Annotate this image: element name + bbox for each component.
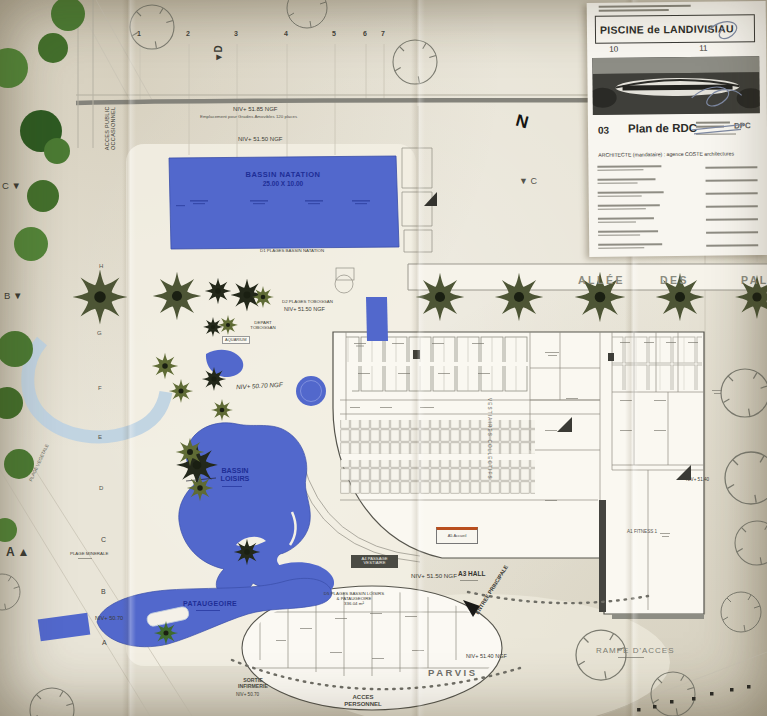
d2-plages: D2 PLAGES TOBOGGAN (282, 299, 333, 304)
grid-letter: A (102, 639, 107, 647)
d1-plages: D1 PLAGES BASSIN NATATION (260, 248, 324, 253)
allee-word-1: ALLÉE (578, 274, 625, 286)
a1-fitness-label: A1 FITNESS 1 (627, 529, 657, 534)
acces-public-label: ACCES PUBLICOCCASIONNEL (104, 96, 117, 160)
section-d-marker: ▼D (213, 45, 225, 62)
allee-word-2: DES (660, 274, 689, 286)
acces-personnel-label: ACCESPERSONNEL (332, 694, 394, 708)
drawing-title: Plan de RDC (628, 122, 697, 136)
bassin-natation-label: BASSIN NATATION 25.00 X 10.00 (233, 171, 333, 187)
plan-photo: ACCES PUBLICOCCASIONNEL ▼D N ▼ C C ▼ B ▼… (0, 0, 767, 716)
drawing-index: 03 (598, 125, 609, 137)
grid-number: 1 (137, 30, 141, 38)
a3-hall-label: A3 HALL (458, 570, 485, 577)
grid-number: 2 (186, 30, 190, 38)
pataugeoire-label: PATAUGEOIRE (183, 600, 237, 608)
section-c-right: ▼ C (519, 176, 537, 186)
level-5185: NIV+ 51.85 NGF (233, 106, 278, 113)
level-toboggan: NIV+ 51.50 NGF (284, 306, 325, 312)
grid-letter: E (98, 434, 102, 441)
section-b-left: B ▼ (4, 291, 22, 302)
sheet-number-left: 10 (609, 45, 618, 54)
aquarium-label: AQUARIUM (222, 336, 250, 344)
level-natation: NIV+ 51.50 NGF (238, 136, 283, 143)
level-parvis: NIV+ 51.40 NGF (466, 653, 507, 659)
grid-number: 6 (363, 30, 367, 38)
grid-number: 3 (234, 30, 238, 38)
sheet-number-right: 11 (699, 44, 707, 53)
plage-minerale-label: PLAGE MINERALE (70, 551, 108, 556)
allee-word-3: PAL (741, 274, 767, 286)
a4-passage-box: A4 PASSAGEVESTIAIRE (351, 555, 398, 568)
grid-number: 4 (284, 30, 288, 38)
bassin-loisirs-label: BASSINLOISIRS (207, 467, 263, 484)
project-title: PISCINE de LANDIVISIAU (596, 22, 734, 35)
title-box: PISCINE de LANDIVISIAU (595, 14, 755, 44)
grid-letter: F (98, 385, 102, 392)
level-5070-plage: NIV+ 50.70 (95, 615, 123, 621)
small-basin (38, 613, 91, 642)
vestiaires-collectifs-label: VESTIAIRES COLLECTIFS (487, 398, 492, 480)
level-5140: NIV+ 51.40 (686, 477, 709, 482)
road (76, 0, 632, 148)
grid-number: 7 (381, 30, 385, 38)
section-a-left: A ▲ (6, 546, 29, 560)
depart-toboggan: DEPARTTOBOGGAN (244, 320, 282, 330)
gradins-note: Emplacement pour Gradins Amovibles 120 p… (200, 114, 297, 119)
grid-number: 5 (332, 30, 336, 38)
parvis-label: PARVIS (428, 668, 478, 679)
building-photo (592, 56, 760, 115)
grid-letter: D (99, 485, 103, 492)
level-hall: NIV+ 51.50 NGF (411, 572, 457, 579)
section-c-left: C ▼ (2, 181, 21, 192)
a5-accueil-box: A5 Accueil (436, 527, 478, 544)
grid-letter: B (101, 588, 106, 596)
grid-letter: G (97, 330, 102, 337)
title-block: PISCINE de LANDIVISIAU 10 11 03 Plan de … (587, 1, 767, 257)
stamp-dpc: DPC (734, 121, 751, 130)
architect-line: ARCHITECTE (mandataire) : agence COSTE a… (598, 151, 734, 158)
channel-pool (366, 297, 388, 341)
grid-letter: H (99, 263, 103, 270)
rampe-acces-label: RAMPE D'ACCES (596, 646, 675, 655)
level-sortie: NIV+ 50.70 (236, 692, 259, 697)
d5-plages: D5 PLAGES BASSIN LOISIRS& PATAUGEOIRE336… (316, 591, 392, 606)
grid-letter: C (101, 536, 106, 544)
sortie-infirmerie-label: SORTIEINFIRMERIE (228, 678, 278, 690)
